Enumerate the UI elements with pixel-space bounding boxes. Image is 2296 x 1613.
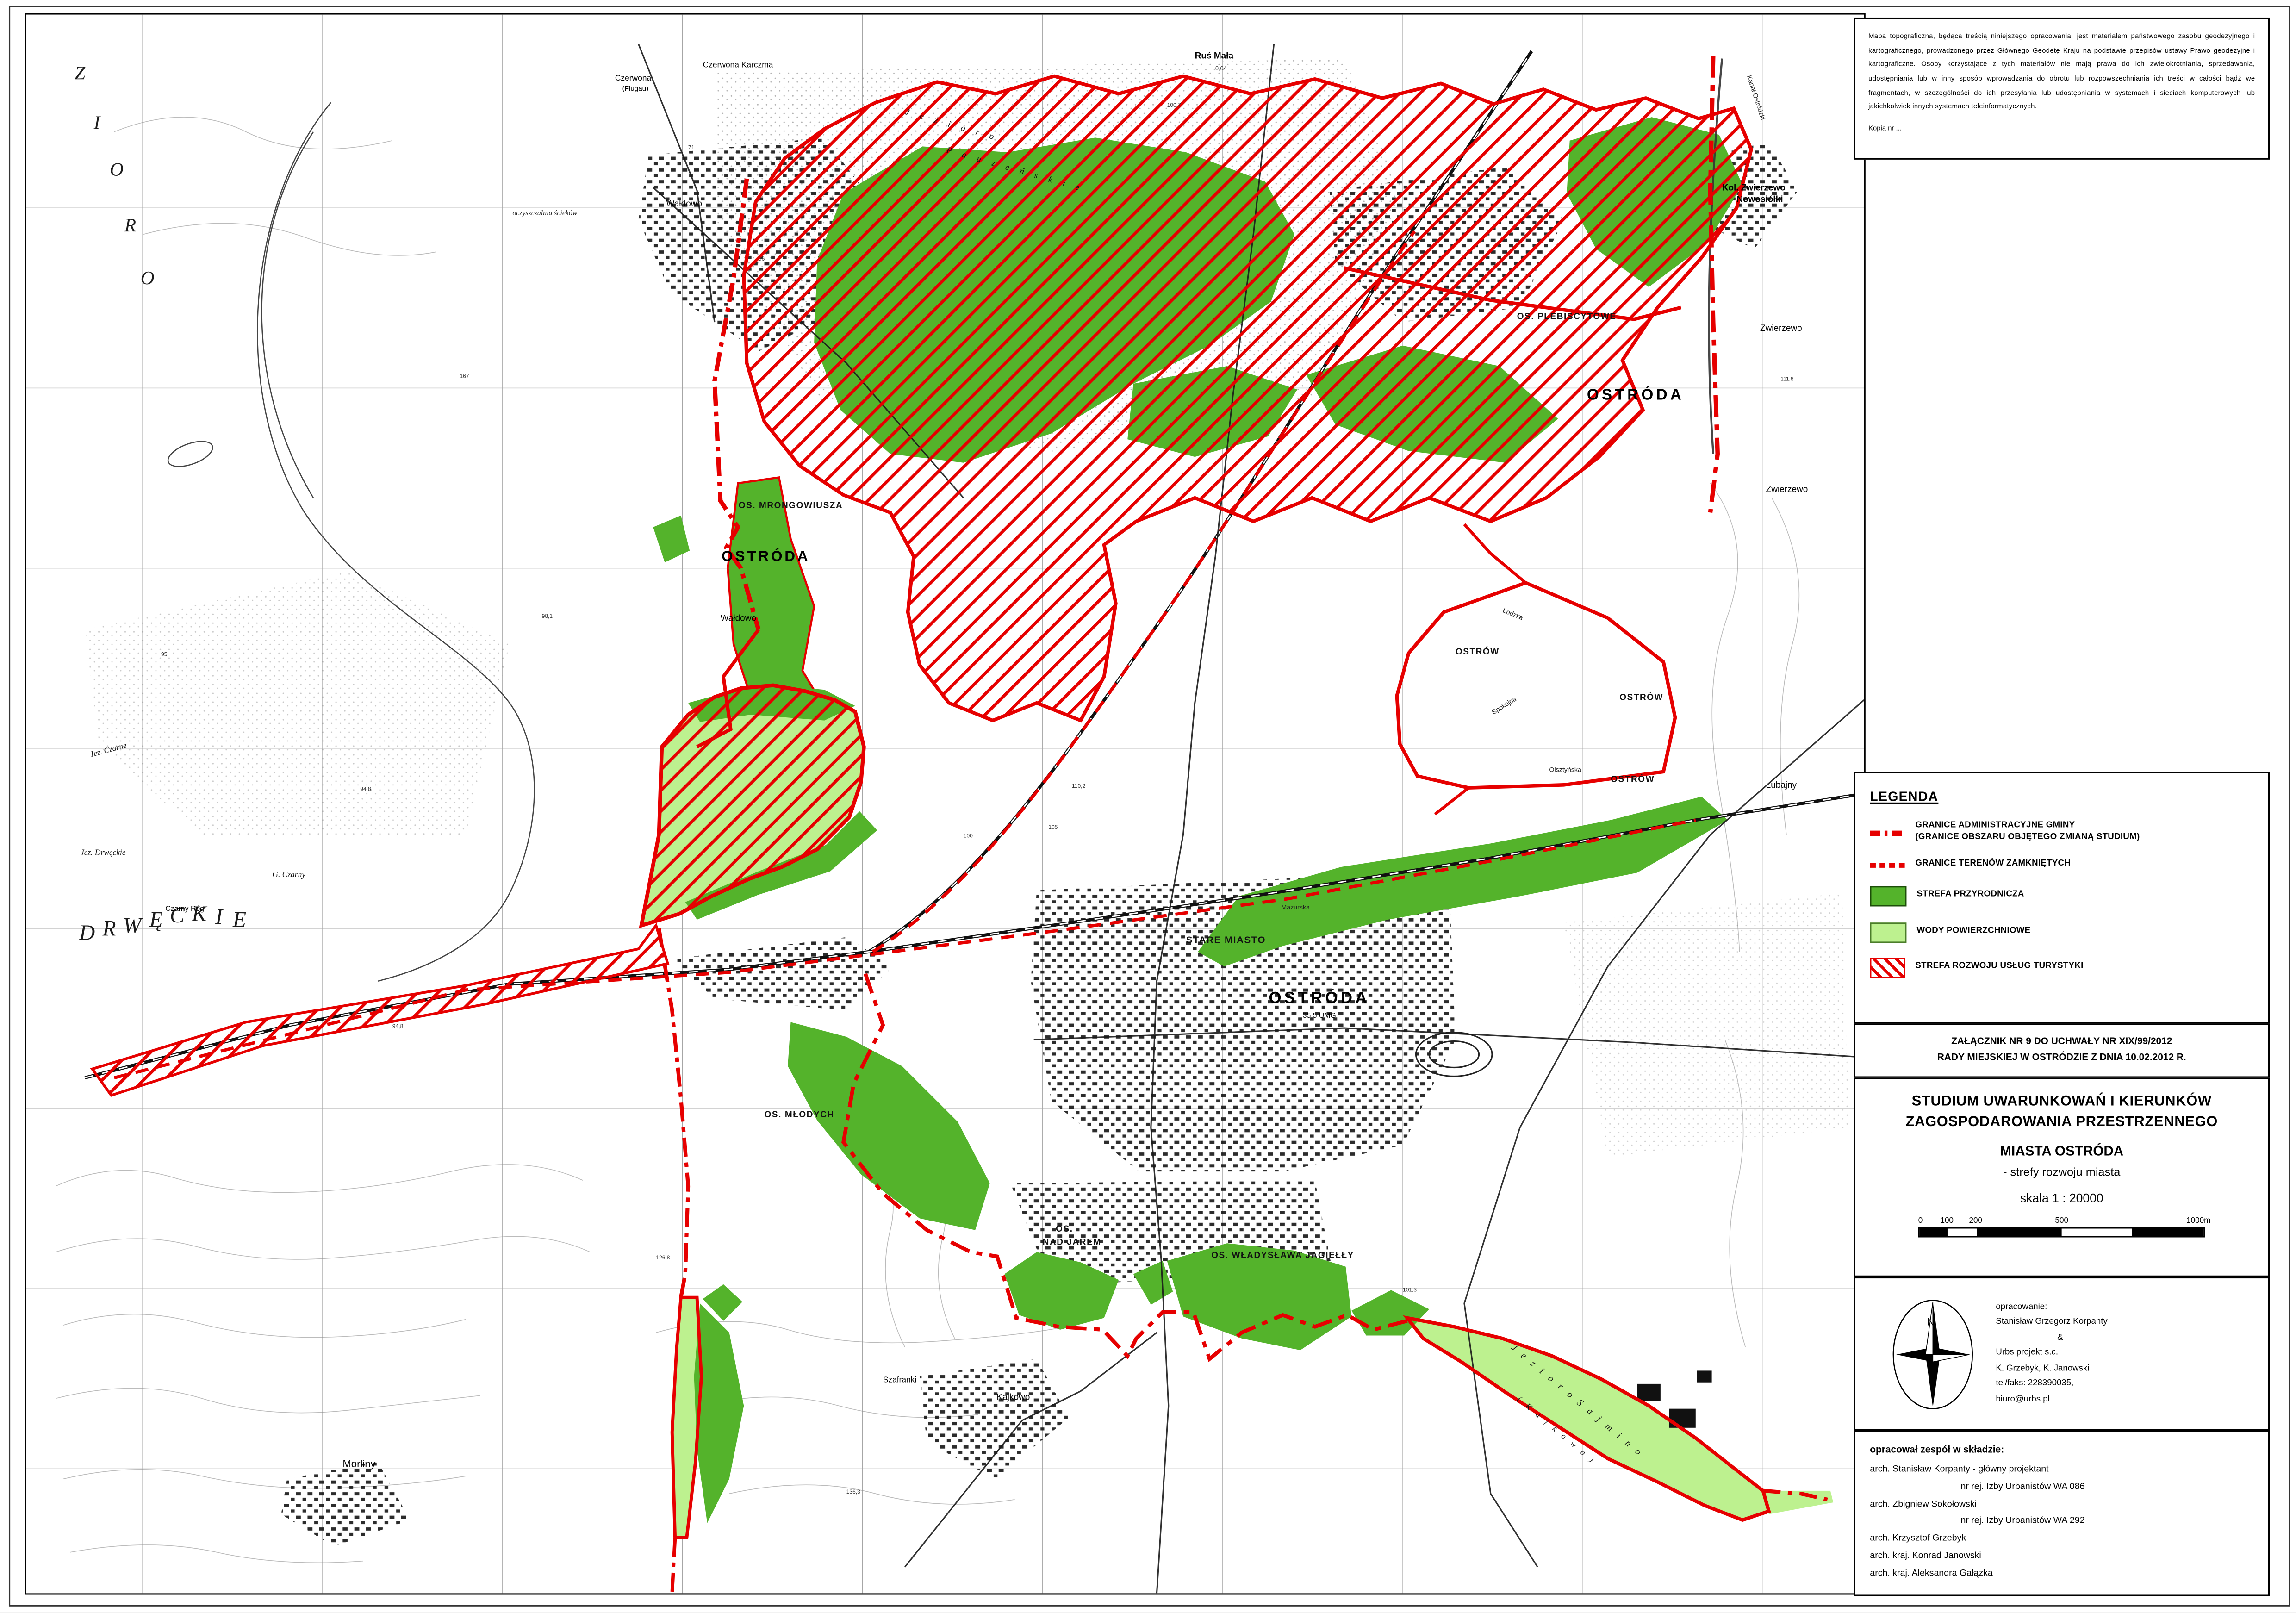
credits-box: N opracowanie: Stanisław Grzegorz Korpan…: [1854, 1277, 2270, 1431]
legend-item-tourism-zone: STREFA ROZWOJU USŁUG TURYSTYKI: [1870, 958, 2256, 978]
team-member-registration: nr rej. Izby Urbanistów WA 086: [1870, 1479, 2253, 1496]
team-member: arch. Krzysztof Grzebyk: [1870, 1531, 2253, 1548]
scale-ticks: 0 100 200 500 1000m: [1918, 1217, 2205, 1227]
credits-partners: K. Grzebyk, K. Janowski: [1996, 1362, 2107, 1377]
map-sheet: ZIORODRWĘCKIEJez. DrwęckieJez. CzarneCza…: [0, 0, 2296, 1612]
disclaimer-text: Mapa topograficzna, będąca treścią ninie…: [1868, 29, 2255, 114]
team-member: arch. kraj. Aleksandra Gałązka: [1870, 1565, 2253, 1582]
legend-label: WODY POWIERZCHNIOWE: [1917, 927, 2031, 938]
disclaimer-box: Mapa topograficzna, będąca treścią ninie…: [1854, 18, 2270, 160]
compass-rose-icon: N: [1891, 1295, 1976, 1412]
red-dashed-line-icon: [1870, 860, 1905, 869]
study-subtitle: - strefy rozwoju miasta: [1855, 1166, 2268, 1179]
credits-author: Stanisław Grzegorz Korpanty: [1996, 1315, 2107, 1331]
field-texture: [1564, 893, 1849, 1157]
credits-email: biuro@urbs.pl: [1996, 1392, 2107, 1407]
legend-label: STREFA ROZWOJU USŁUG TURYSTYKI: [1915, 962, 2083, 973]
study-title-line1: STUDIUM UWARUNKOWAŃ I KIERUNKÓW: [1855, 1092, 2268, 1113]
legend-item-closed-areas: GRANICE TERENÓW ZAMKNIĘTYCH: [1870, 859, 2256, 871]
red-hatch-swatch-icon: [1870, 958, 1905, 978]
red-dashdot-line-icon: [1870, 828, 1905, 837]
team-member: arch. kraj. Konrad Janowski: [1870, 1548, 2253, 1565]
credits-company: Urbs projekt s.c.: [1996, 1346, 2107, 1361]
title-box: STUDIUM UWARUNKOWAŃ I KIERUNKÓW ZAGOSPOD…: [1854, 1078, 2270, 1277]
legend-label: STREFA PRZYRODNICZA: [1917, 891, 2024, 902]
study-title-line2: ZAGOSPODAROWANIA PRZESTRZENNEGO: [1855, 1113, 2268, 1134]
team-member: arch. Zbigniew Sokołowski: [1870, 1496, 2253, 1513]
legend-label-2: (GRANICE OBSZARU OBJĘTEGO ZMIANĄ STUDIUM…: [1915, 833, 2140, 844]
scale-tick: 500: [2055, 1217, 2068, 1226]
lightgreen-swatch-icon: [1870, 922, 1906, 942]
topographic-map[interactable]: ZIORODRWĘCKIEJez. DrwęckieJez. CzarneCza…: [26, 15, 1864, 1594]
credits-text: opracowanie: Stanisław Grzegorz Korpanty…: [1996, 1300, 2107, 1408]
team-member: arch. Stanisław Korpanty - główny projek…: [1870, 1462, 2253, 1479]
team-member-registration: nr rej. Izby Urbanistów WA 292: [1870, 1513, 2253, 1530]
legend-box: LEGENDA GRANICE ADMINISTRACYJNE GMINY (G…: [1854, 772, 2270, 1023]
credits-heading: opracowanie:: [1996, 1300, 2107, 1315]
map-panel[interactable]: ZIORODRWĘCKIEJez. DrwęckieJez. CzarneCza…: [25, 13, 1866, 1594]
legend-item-nature-zone: STREFA PRZYRODNICZA: [1870, 886, 2256, 906]
study-title-line3: MIASTA OSTRÓDA: [1855, 1143, 2268, 1159]
copy-number-label: Kopia nr ...: [1868, 124, 2255, 131]
green-swatch-icon: [1870, 886, 1906, 906]
legend-title: LEGENDA: [1870, 789, 2256, 804]
team-list: arch. Stanisław Korpanty - główny projek…: [1870, 1462, 2253, 1582]
credits-ampersand: &: [1996, 1331, 2107, 1346]
scale-tick: 1000m: [2186, 1217, 2210, 1226]
legend-item-admin-boundary: GRANICE ADMINISTRACYJNE GMINY (GRANICE O…: [1870, 822, 2256, 844]
team-heading: opracował zespół w składzie:: [1870, 1445, 2253, 1456]
legend-item-surface-water: WODY POWIERZCHNIOWE: [1870, 922, 2256, 942]
legend-label: GRANICE TERENÓW ZAMKNIĘTYCH: [1915, 859, 2071, 871]
team-box: opracował zespół w składzie: arch. Stani…: [1854, 1431, 2270, 1596]
legend-label: GRANICE ADMINISTRACYJNE GMINY: [1915, 822, 2140, 833]
scale-tick: 100: [1940, 1217, 1953, 1226]
scale-label: skala 1 : 20000: [1855, 1191, 2268, 1206]
scale-tick: 200: [1969, 1217, 1982, 1226]
credits-phone: tel/faks: 228390035,: [1996, 1377, 2107, 1392]
scale-tick: 0: [1918, 1217, 1923, 1226]
attachment-line2: RADY MIEJSKIEJ W OSTRÓDZIE Z DNIA 10.02.…: [1855, 1051, 2268, 1066]
attachment-box: ZAŁĄCZNIK NR 9 DO UCHWAŁY NR XIX/99/2012…: [1854, 1024, 2270, 1078]
attachment-line1: ZAŁĄCZNIK NR 9 DO UCHWAŁY NR XIX/99/2012: [1855, 1035, 2268, 1051]
scale-bar: 0 100 200 500 1000m: [1918, 1217, 2205, 1238]
scale-bar-segments: [1918, 1228, 2205, 1238]
